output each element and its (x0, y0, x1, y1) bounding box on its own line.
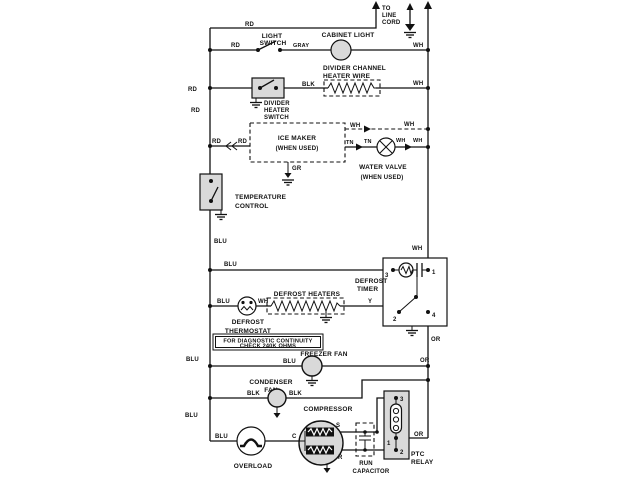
arrow-up-icon (407, 3, 414, 10)
wire-color-label: BLU (217, 299, 230, 305)
terminal-label: 2 (393, 317, 397, 323)
wire-color-label: WH (412, 246, 422, 252)
freezer-fan-motor-symbol (302, 356, 322, 376)
wire-color-label: BLU (224, 262, 237, 268)
ground-icon (320, 318, 332, 323)
wire-color-label: WH (413, 138, 423, 144)
ground-icon (406, 331, 418, 336)
divider-switch-label: HEATER (264, 108, 290, 114)
wire-color-label: TN (364, 139, 372, 145)
wire-color-label: WH (413, 81, 423, 87)
wire-network (210, 8, 428, 450)
cabinet-light-symbol (331, 40, 351, 60)
capacitor-symbol (359, 432, 371, 450)
connector-arrow-icon (364, 126, 371, 133)
wire-color-label: RD (212, 139, 222, 145)
wire-color-label: BLU (185, 413, 198, 419)
light-switch-label: LIGHT (262, 33, 283, 40)
divider-switch-label: SWITCH (264, 115, 289, 121)
overload-symbol (237, 427, 265, 455)
ice-maker-box (250, 123, 345, 162)
terminal-label: 4 (432, 313, 436, 319)
water-valve-label: WATER VALVE (359, 164, 407, 171)
wire-color-label: RD (231, 43, 241, 49)
light-switch-label: SWITCH (260, 40, 287, 47)
ice-maker-label: (WHEN USED) (276, 146, 319, 152)
defrost-timer-label: DEFROST (355, 278, 387, 285)
top-feed-wire (210, 8, 376, 28)
terminal-label: R (338, 455, 343, 461)
ground-icon (282, 180, 294, 185)
wire-color-label: RD (238, 139, 248, 145)
wire-color-label: WH (350, 123, 360, 129)
wire-color-label: OR (431, 337, 441, 343)
diagnostic-note-text: CHECK 240K OHMS (240, 344, 296, 350)
terminal-label: S (336, 423, 340, 429)
temperature-control-section: TEMPERATURE CONTROL BLU (200, 174, 287, 245)
run-capacitor-label: CAPACITOR (353, 469, 390, 475)
terminal-label: 1 (387, 441, 391, 447)
divider-switch-label: DIVIDER (264, 101, 290, 107)
cabinet-light-section: LIGHT SWITCH RD GRAY CABINET LIGHT WH (231, 32, 423, 60)
water-valve-label: (WHEN USED) (361, 175, 404, 181)
terminal-label: C (292, 434, 297, 440)
wire-color-label: BLU (186, 357, 199, 363)
terminal-label: 3 (400, 397, 404, 403)
divider-heater-section: RD DIVIDER HEATER SWITCH BLK DIVIDER CHA… (188, 65, 423, 121)
defrost-thermostat-symbol (238, 297, 256, 315)
arrow-down-icon (324, 468, 331, 473)
divider-channel-heater-label: DIVIDER CHANNEL (323, 65, 386, 72)
arrow-up-icon (424, 1, 432, 9)
wire-color-label: OR (414, 432, 424, 438)
ground-icon (306, 381, 318, 386)
arrow-down-icon (274, 413, 281, 418)
terminal-label: 1 (432, 270, 436, 276)
run-capacitor-label: RUN (359, 461, 373, 467)
to-line-cord-label: LINE (382, 13, 396, 19)
connector-arrow-icon (356, 144, 363, 151)
defrost-timer-label: TIMER (357, 286, 378, 293)
wire-color-label: GRAY (293, 43, 309, 49)
defrost-section: BLU WH DEFROST HEATERS DEFROST THERMOSTA… (213, 291, 344, 350)
wire-color-label: RD (188, 87, 198, 93)
heater-element-symbol (328, 83, 376, 93)
wire-color-label: BLK (247, 391, 260, 397)
ice-maker-label: ICE MAKER (278, 135, 316, 142)
wire-color-label: BLK (302, 82, 315, 88)
defrost-heaters-label: DEFROST HEATERS (274, 291, 341, 298)
to-line-cord-label: TO (382, 6, 391, 12)
wire-color-label: RD (191, 108, 201, 114)
terminal-label: 2 (400, 450, 404, 456)
ice-maker-section: RD RD ICE MAKER (WHEN USED) WH WH TN TN … (212, 122, 423, 185)
arrow-down-icon (405, 24, 415, 31)
arrow-down-icon (285, 173, 292, 178)
ptc-relay-label: RELAY (411, 459, 434, 466)
wire-color-label: TN (346, 140, 354, 146)
wire-color-label: OR (420, 358, 430, 364)
ground-icon (250, 103, 262, 108)
arrow-up-icon (372, 1, 380, 9)
wire-color-label: BLU (214, 239, 227, 245)
wire-color-label: Y (368, 299, 372, 305)
divider-channel-heater-label: HEATER WIRE (323, 73, 371, 80)
condenser-fan-label: CONDENSER (249, 379, 292, 386)
divider-heater-element-box (324, 80, 380, 96)
defrost-thermostat-label: DEFROST (232, 319, 264, 326)
temperature-control-label: CONTROL (235, 203, 269, 210)
wire-color-label: BLK (289, 391, 302, 397)
wire-color-label: WH (396, 138, 406, 144)
heater-element-symbol (271, 301, 340, 311)
divider-heater-switch-symbol (252, 78, 284, 98)
condenser-fan-motor-symbol (268, 389, 286, 407)
to-line-cord-label: CORD (382, 20, 401, 26)
wiring-diagram: TO LINE CORD RD LIGHT SWITCH RD GRAY CAB… (0, 0, 640, 480)
compressor-section: BLU BLU OVERLOAD C COMPRESSOR S R RUN CA… (185, 391, 434, 475)
cabinet-light-label: CABINET LIGHT (322, 32, 375, 39)
ground-icon (215, 215, 227, 220)
connector-arrow-icon (405, 144, 412, 151)
ground-icon (404, 33, 416, 38)
wire-color-label: BLU (215, 434, 228, 440)
wire-color-label: BLU (283, 359, 296, 365)
wire-color-label: GR (292, 166, 302, 172)
ptc-relay-label: PTC (411, 451, 425, 458)
wire-color-label: WH (413, 43, 423, 49)
wire-color-label: WH (404, 122, 414, 128)
compressor-label: COMPRESSOR (304, 406, 353, 413)
wiring-diagram-canvas: TO LINE CORD RD LIGHT SWITCH RD GRAY CAB… (0, 0, 640, 480)
wire-color-label: RD (245, 22, 255, 28)
overload-label: OVERLOAD (234, 463, 273, 470)
temperature-control-label: TEMPERATURE (235, 194, 287, 201)
